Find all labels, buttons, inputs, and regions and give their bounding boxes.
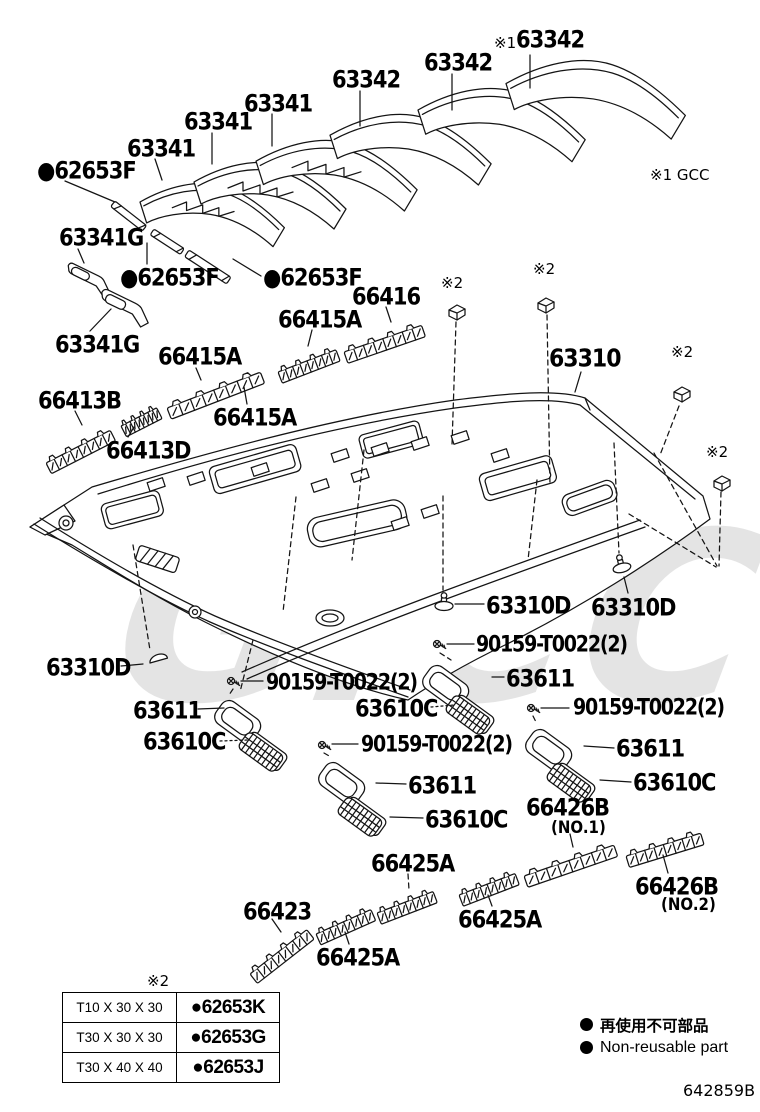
table-row: T30 X 30 X 30 ●62653G <box>63 1023 280 1053</box>
part-66415A-strip-mid <box>277 346 341 383</box>
legend: 再使用不可部品 Non-reusable part <box>580 1013 728 1059</box>
fastener-part: ●62653G <box>177 1023 280 1053</box>
label-90159-2: 90159-T0022(2) <box>266 672 417 694</box>
ref2-note-1: ※2 <box>441 276 463 291</box>
label-63611-3: 63611 <box>616 737 684 761</box>
fastener-size-table: T10 X 30 X 30 ●62653K T30 X 30 X 30 ●626… <box>62 992 280 1083</box>
legend-row-jp: 再使用不可部品 <box>580 1013 728 1036</box>
label-63342-3: 63342 <box>332 68 400 92</box>
fastener-size: T10 X 30 X 30 <box>63 993 177 1023</box>
label-66416: 66416 <box>352 285 420 309</box>
legend-row-en: Non-reusable part <box>580 1036 728 1059</box>
label-63341-2: 63341 <box>184 110 252 134</box>
label-66415A-1: 66415A <box>278 308 361 332</box>
label-66423: 66423 <box>243 900 311 924</box>
label-66425A-left: 66425A <box>316 946 399 970</box>
label-63310D-1: 63310D <box>486 594 571 618</box>
legend-text-en: Non-reusable part <box>600 1039 728 1057</box>
part-66423-strip <box>248 927 315 984</box>
label-66426B-no1: (NO.1) <box>551 819 606 836</box>
label-62653F-2: ●62653F <box>120 266 219 290</box>
label-66425A-top: 66425A <box>371 852 454 876</box>
ref1-gcc-note: ※1 GCC <box>650 168 709 183</box>
parts-diagram-page: GiCC <box>0 0 760 1112</box>
part-66413B-strip <box>44 427 115 474</box>
label-66426B-no2: (NO.2) <box>661 896 716 913</box>
label-63310D-2: 63310D <box>591 596 676 620</box>
fastener-size: T30 X 30 X 30 <box>63 1023 177 1053</box>
ref2-note-table: ※2 <box>147 974 169 989</box>
label-90159-3: 90159-T0022(2) <box>573 697 724 719</box>
label-66425A-right: 66425A <box>458 908 541 932</box>
legend-text-jp: 再使用不可部品 <box>600 1014 709 1036</box>
label-63342-1: 63342 <box>516 28 584 52</box>
label-66413B: 66413B <box>38 389 121 413</box>
label-63611-2: 63611 <box>133 699 201 723</box>
label-66415A-2: 66415A <box>158 345 241 369</box>
label-90159-4: 90159-T0022(2) <box>361 734 512 756</box>
ref2-note-3: ※2 <box>671 345 693 360</box>
fastener-part: ●62653K <box>177 993 280 1023</box>
non-reusable-dot-icon <box>580 1041 593 1054</box>
label-90159-1: 90159-T0022(2) <box>476 634 627 656</box>
table-row: T30 X 40 X 40 ●62653J <box>63 1053 280 1083</box>
part-66413D-strip <box>119 404 162 436</box>
label-63341-1: 63341 <box>244 92 312 116</box>
label-63341G-1: 63341G <box>59 226 143 250</box>
part-66425A-strip-3 <box>458 870 520 906</box>
label-63610C-4: 63610C <box>425 808 507 832</box>
diagram-doc-number: 642859B <box>683 1081 755 1100</box>
label-63310D-3: 63310D <box>46 656 131 680</box>
ref1-note: ※1 <box>494 36 516 51</box>
label-66413D: 66413D <box>106 439 191 463</box>
part-66425A-strip-2 <box>376 888 438 924</box>
label-63611-4: 63611 <box>408 774 476 798</box>
label-63341-3: 63341 <box>127 137 195 161</box>
label-63610C-2: 63610C <box>143 730 225 754</box>
label-63341G-2: 63341G <box>55 333 139 357</box>
label-66415A-3: 66415A <box>213 406 296 430</box>
label-63611-1: 63611 <box>506 667 574 691</box>
label-62653F-1: ●62653F <box>37 159 136 183</box>
label-63342-2: 63342 <box>424 51 492 75</box>
fastener-part: ●62653J <box>177 1053 280 1083</box>
ref2-note-4: ※2 <box>706 445 728 460</box>
part-66426B-no1-strip <box>523 841 618 887</box>
fastener-size: T30 X 40 X 40 <box>63 1053 177 1083</box>
non-reusable-dot-icon <box>580 1018 593 1031</box>
label-63610C-1: 63610C <box>355 697 437 721</box>
label-62653F-3: ●62653F <box>263 266 362 290</box>
label-63610C-3: 63610C <box>633 771 715 795</box>
label-63310: 63310 <box>549 347 621 372</box>
table-row: T10 X 30 X 30 ●62653K <box>63 993 280 1023</box>
part-66425A-strip-1 <box>314 906 375 945</box>
ref2-note-2: ※2 <box>533 262 555 277</box>
